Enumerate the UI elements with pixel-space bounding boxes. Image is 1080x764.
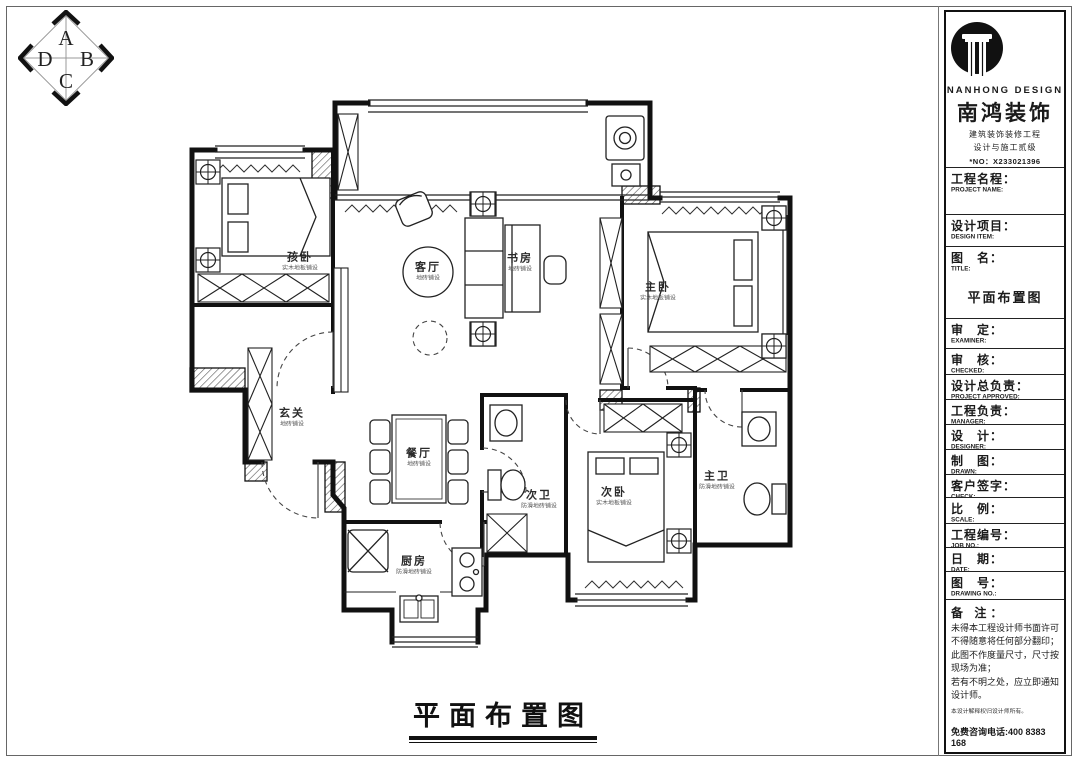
drawing-caption-text: 平面布置图 (409, 694, 597, 733)
room-label-living-room: 客厅 地砖铺设 (414, 262, 442, 283)
room-label-study: 书房 地砖铺设 (506, 253, 534, 274)
room-label-master-bath: 主卫 防滑地砖铺设 (696, 471, 738, 492)
room-label-master-bedroom: 主卧 实木地板铺设 (637, 282, 679, 303)
brand-line2: 设计与施工贰级 (946, 142, 1064, 153)
field-project-approved: 设计总负责： PROJECT APPROVED: (946, 374, 1064, 399)
armchair (394, 190, 434, 228)
brand-name-en: NANHONG DESIGN (946, 85, 1064, 96)
field-design-item: 设计项目： DESIGN ITEM: (946, 214, 1064, 246)
kids-bed (222, 178, 330, 256)
field-client-signature: 客户签字： CHECK: (946, 474, 1064, 497)
field-drawn: 制 图： DRAWN: (946, 449, 1064, 474)
room-label-second-bedroom: 次卧 实木地板铺设 (593, 487, 635, 508)
remarks-block: 备 注： 未得本工程设计师书面许可不得随意将任何部分翻印； 此图不作度量尺寸，尺… (946, 599, 1064, 752)
caption-underline-thick (409, 736, 597, 740)
masterbath-fixtures (742, 412, 786, 515)
drawing-caption: 平面布置图 (409, 694, 597, 743)
title-block: NANHONG DESIGN 南鸿装饰 建筑装饰装修工程 设计与施工贰级 *NO… (944, 10, 1066, 754)
sofa (465, 218, 503, 318)
company-logo (946, 20, 1008, 82)
company-header: NANHONG DESIGN 南鸿装饰 建筑装饰装修工程 设计与施工贰级 *NO… (946, 12, 1064, 167)
caption-underline-thin (409, 742, 597, 743)
bath2-fixtures (488, 405, 525, 500)
brand-name-cn: 南鸿装饰 (946, 97, 1064, 127)
field-scale: 比 例： SCALE: (946, 497, 1064, 523)
washing-machine (606, 116, 644, 186)
field-drawing-no: 图 号： DRAWING NO.: (946, 571, 1064, 599)
drawing-sheet: A B C D (0, 0, 1080, 764)
room-label-entry: 玄关 地砖铺设 (278, 408, 306, 429)
room-label-kitchen: 厨房 防滑地砖铺设 (393, 556, 435, 577)
room-label-kids-bedroom: 孩卧 实木地板铺设 (279, 252, 321, 273)
remarks-label: 备 注： (951, 604, 1059, 621)
remarks-fine-print: 本设计解释权归设计师所有。 (951, 706, 1048, 715)
brand-license-no: *NO：X233021396 (946, 156, 1064, 167)
floor-plan (0, 0, 940, 764)
field-designer: 设 计： DESIGNER: (946, 424, 1064, 448)
room-label-second-bath: 次卫 防滑地砖铺设 (518, 490, 560, 511)
field-title: 图 名： TITLE: 平面布置图 (946, 246, 1064, 319)
field-manager: 工程负责： MANAGER: (946, 399, 1064, 424)
brand-line1: 建筑装饰装修工程 (946, 129, 1064, 140)
hotline-phone: 免费咨询电话:400 8383 168 (951, 725, 1059, 748)
field-date: 日 期： DATE: (946, 547, 1064, 570)
remarks-line-1: 未得本工程设计师书面许可不得随意将任何部分翻印； (951, 622, 1059, 648)
field-project-name: 工程名程： PROJECT NAME: (946, 167, 1064, 214)
room-label-dining-room: 餐厅 地砖铺设 (405, 448, 433, 469)
remarks-line-2: 此图不作度量尺寸，尺寸按现场为准； (951, 649, 1059, 675)
remarks-line-3: 若有不明之处，应立即通知设计师。 (951, 676, 1059, 702)
drawing-title-value: 平面布置图 (951, 287, 1059, 306)
field-job-no: 工程编号： JOB NO.: (946, 523, 1064, 547)
field-examiner: 审 定： EXAMINER: (946, 318, 1064, 348)
field-checked: 审 核： CHECKED: (946, 348, 1064, 373)
